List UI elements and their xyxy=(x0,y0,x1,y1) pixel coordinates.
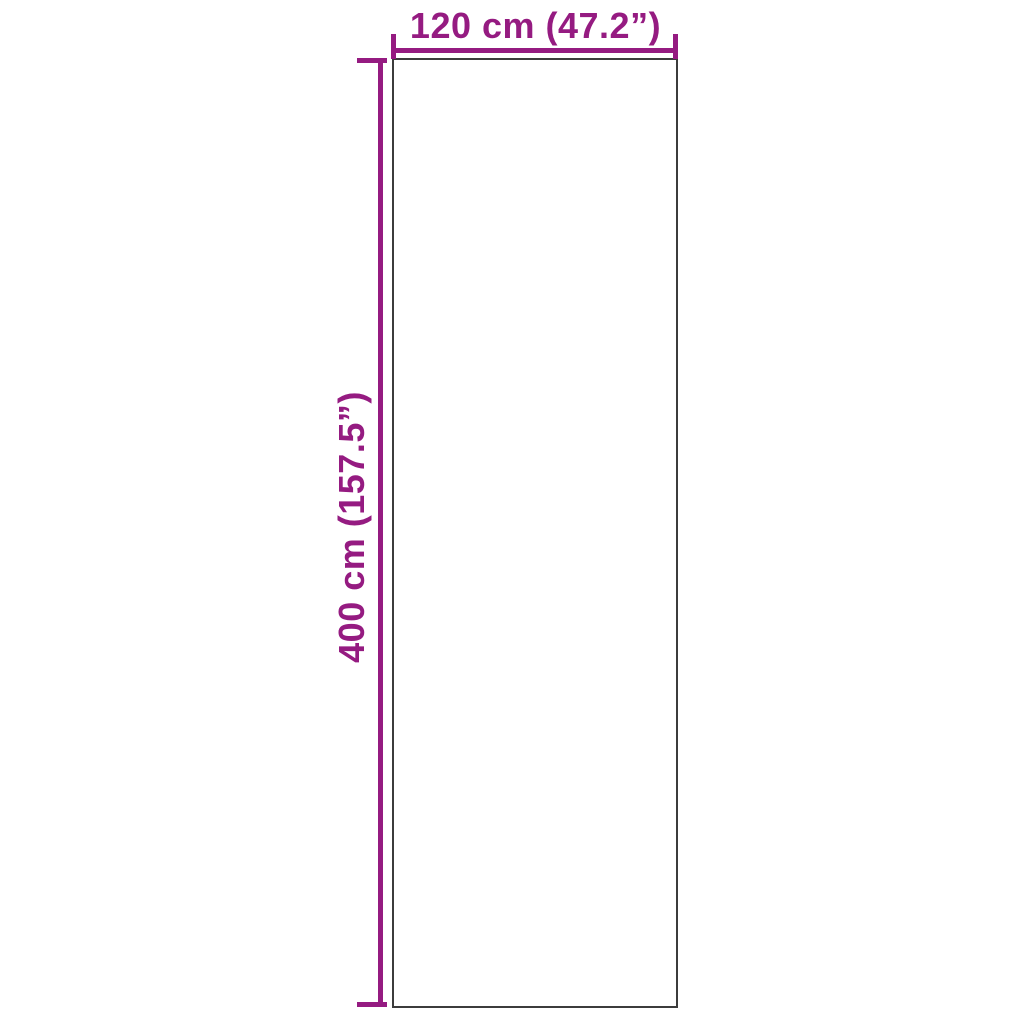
height-dimension-tick-bottom xyxy=(357,1002,387,1007)
height-dimension-line xyxy=(378,60,383,1004)
height-dimension-label: 400 cm (157.5”) xyxy=(331,391,373,663)
product-dimension-diagram: 120 cm (47.2”) 400 cm (157.5”) xyxy=(0,0,1024,1024)
height-dimension-tick-top xyxy=(357,58,387,63)
width-dimension-label: 120 cm (47.2”) xyxy=(393,5,678,47)
width-dimension-line xyxy=(393,48,678,53)
product-outline xyxy=(392,58,678,1008)
